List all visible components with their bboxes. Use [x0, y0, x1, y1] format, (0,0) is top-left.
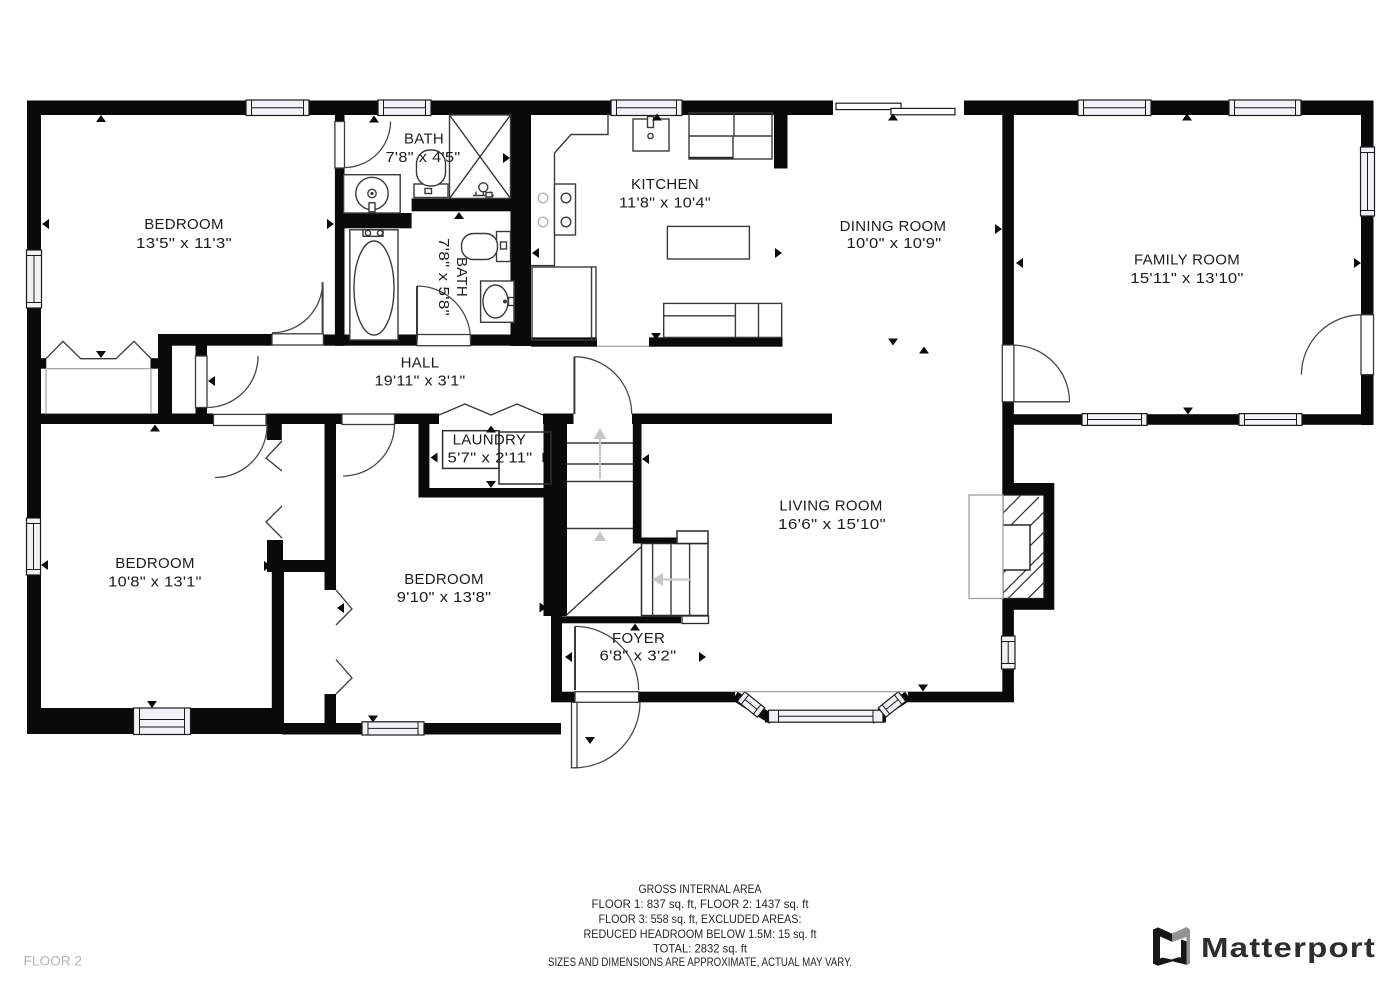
svg-text:BEDROOM: BEDROOM [115, 555, 195, 572]
svg-text:9'10" x 13'8": 9'10" x 13'8" [397, 589, 492, 606]
svg-text:LIVING ROOM: LIVING ROOM [779, 498, 882, 515]
svg-text:KITCHEN: KITCHEN [631, 176, 699, 193]
svg-text:FLOOR 3: 558 sq. ft, EXCLUDED: FLOOR 3: 558 sq. ft, EXCLUDED AREAS: [599, 912, 802, 926]
svg-text:5'7" x 2'11": 5'7" x 2'11" [448, 450, 533, 467]
svg-text:10'8" x 13'1": 10'8" x 13'1" [108, 574, 202, 591]
svg-text:GROSS INTERNAL AREA: GROSS INTERNAL AREA [639, 882, 762, 896]
svg-text:REDUCED HEADROOM BELOW 1.5M: 1: REDUCED HEADROOM BELOW 1.5M: 15 sq. ft [584, 927, 818, 941]
svg-text:LAUNDRY: LAUNDRY [453, 431, 527, 448]
svg-text:DINING ROOM: DINING ROOM [840, 218, 947, 235]
svg-text:FLOOR 1: 837 sq. ft, FLOOR 2:: FLOOR 1: 837 sq. ft, FLOOR 2: 1437 sq. f… [592, 897, 810, 911]
svg-text:19'11" x 3'1": 19'11" x 3'1" [375, 373, 466, 390]
svg-text:HALL: HALL [401, 355, 440, 372]
svg-text:FOYER: FOYER [612, 630, 665, 647]
svg-text:FAMILY ROOM: FAMILY ROOM [1134, 252, 1240, 269]
svg-text:6'8" x 3'2": 6'8" x 3'2" [600, 648, 677, 665]
svg-text:7'8" x 4'5": 7'8" x 4'5" [386, 149, 461, 166]
svg-text:BATH: BATH [404, 131, 444, 148]
svg-text:SIZES AND DIMENSIONS ARE APPRO: SIZES AND DIMENSIONS ARE APPROXIMATE, AC… [548, 955, 852, 969]
svg-text:16'6" x 15'10": 16'6" x 15'10" [778, 516, 886, 533]
svg-text:11'8" x 10'4": 11'8" x 10'4" [619, 195, 711, 212]
svg-text:TOTAL: 2832 sq. ft: TOTAL: 2832 sq. ft [653, 942, 748, 956]
svg-text:BATH: BATH [453, 257, 470, 297]
svg-text:10'0" x 10'9": 10'0" x 10'9" [847, 235, 942, 252]
svg-text:13'5" x 11'3": 13'5" x 11'3" [136, 235, 232, 252]
svg-text:7'8" x 5'8": 7'8" x 5'8" [435, 238, 452, 316]
svg-text:FLOOR 2: FLOOR 2 [24, 953, 83, 969]
svg-text:15'11" x 13'10": 15'11" x 13'10" [1130, 270, 1244, 287]
svg-text:BEDROOM: BEDROOM [144, 216, 224, 233]
svg-text:BEDROOM: BEDROOM [404, 571, 484, 588]
svg-text:Matterport: Matterport [1201, 932, 1376, 963]
